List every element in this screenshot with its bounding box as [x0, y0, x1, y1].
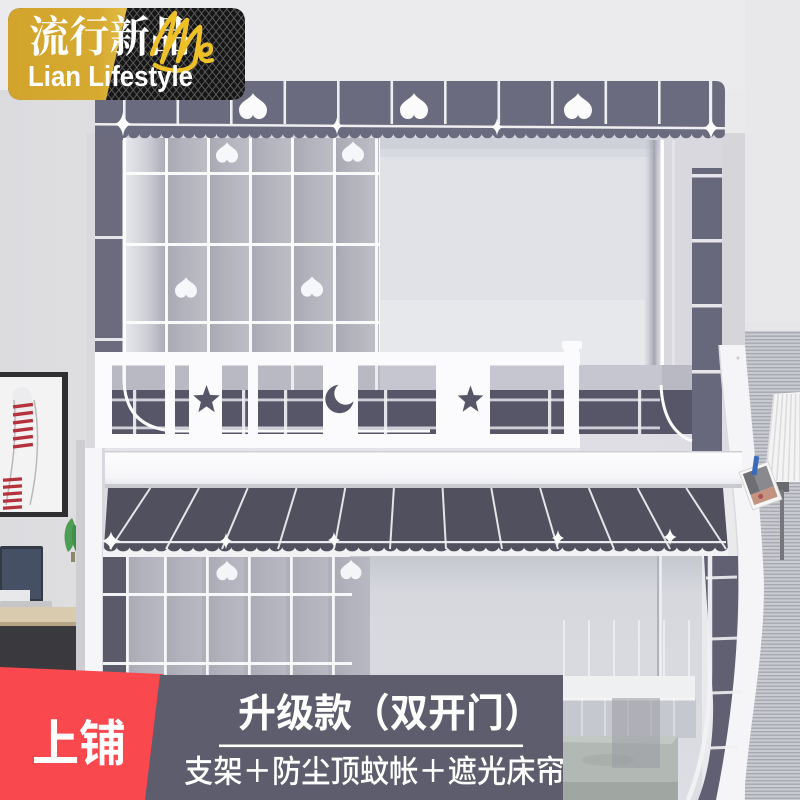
- svg-text:Lian Lifestyle: Lian Lifestyle: [28, 61, 193, 93]
